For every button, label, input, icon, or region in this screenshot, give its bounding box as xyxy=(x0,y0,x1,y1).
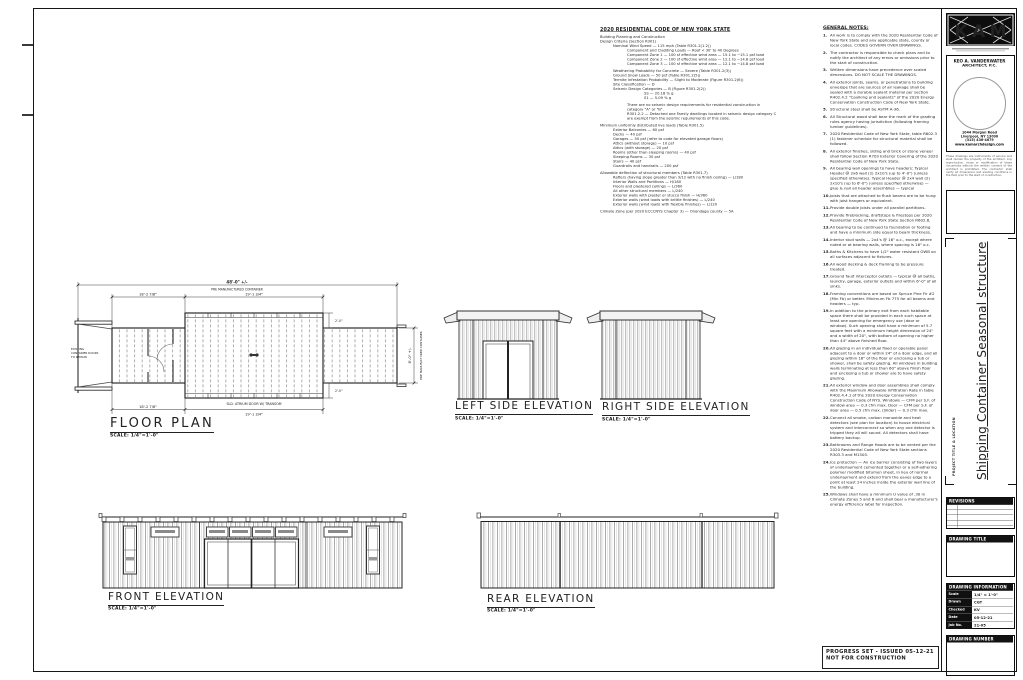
drawing-information-box: DRAWING INFORMATION Scale1/4" = 1'-0"Dra… xyxy=(946,583,1015,629)
note-text: All bearing wall openings to have header… xyxy=(830,166,938,191)
drawing-number-box: DRAWING NUMBER xyxy=(946,635,1015,676)
dim-seg-left-bottom: 18'-2 7/8" xyxy=(139,405,157,409)
note-text: The contractor is responsible to check p… xyxy=(830,50,938,65)
note-number: 14. xyxy=(823,237,830,247)
drawing-info-label: Drawn xyxy=(947,599,972,606)
atrium-door-label: SLD. ATRIUM DOOR W/ TRANSOM xyxy=(226,402,281,406)
corner-mark xyxy=(945,476,954,485)
note-number: 23. xyxy=(823,443,830,458)
general-note: 22.Connect all smoke, carbon monoxide an… xyxy=(823,415,938,440)
dim-height: 8'-0" +/- xyxy=(407,347,412,364)
note-text: All work is to comply with the 2020 Resi… xyxy=(830,33,938,48)
general-note: 8.All exterior finishes, siding and bric… xyxy=(823,149,938,164)
general-note: 4.All exterior joints, seams, or penetra… xyxy=(823,80,938,105)
note-text: All glazing in an individual fixed or op… xyxy=(830,346,938,381)
drawing-info-value: KV xyxy=(972,606,1013,613)
drawing-info-label: Scale xyxy=(947,591,972,598)
dim-bump-top: 2'-0" xyxy=(335,319,343,323)
general-notes-block: GENERAL NOTES: 1.All work is to comply w… xyxy=(823,25,938,680)
title-block: KAM KEO A. VANDERWATER ARCHITECT, P.C. 1… xyxy=(941,8,1018,672)
note-number: 6. xyxy=(823,114,830,129)
front-elevation-label: FRONT ELEVATION xyxy=(108,592,224,606)
dim-seg-left-top: 18'-2 7/8" xyxy=(139,293,157,297)
seal-signature-box xyxy=(946,190,1015,234)
floor-plan-label: FLOOR PLAN xyxy=(110,417,214,433)
drawing-info-label: Job No. xyxy=(947,622,972,629)
note-number: 17. xyxy=(823,274,830,289)
note-number: 2. xyxy=(823,50,830,65)
note-text: Ice protection — An ice barrier consisti… xyxy=(830,460,938,490)
note-text: 2020 Residential Code of New York State,… xyxy=(830,132,938,147)
logo-text: KAM xyxy=(955,22,1007,42)
general-note: 11.Provide double joists under all paral… xyxy=(823,206,938,211)
code-block-title: 2020 RESIDENTIAL CODE OF NEW YORK STATE xyxy=(600,27,813,33)
drawing-info-value: 05-12-21 xyxy=(972,614,1013,621)
note-text: All Structural wood shall bear the mark … xyxy=(830,114,938,129)
drawing-info-value: CGT xyxy=(972,599,1013,606)
general-note: 7.2020 Residential Code of New York Stat… xyxy=(823,132,938,147)
project-title: Shipping Container Seasonal structure xyxy=(975,241,989,480)
rear-elevation-drawing xyxy=(474,505,781,597)
note-number: 21. xyxy=(823,383,830,413)
general-note: 10.Joists that are attached to flush bea… xyxy=(823,193,938,203)
architect-stamp-box: KEO A. VANDERWATER ARCHITECT, P.C. 1044 … xyxy=(946,55,1015,152)
note-text: Joists that are attached to flush beams … xyxy=(830,193,938,203)
note-number: 8. xyxy=(823,149,830,164)
general-note: 9.All bearing wall openings to have head… xyxy=(823,166,938,191)
note-number: 25. xyxy=(823,492,830,507)
architect-seal-circle xyxy=(953,77,1006,130)
drawing-info-label: Checked xyxy=(947,606,972,613)
drawing-information-rows: Scale1/4" = 1'-0"DrawnCGTCheckedKVDate05… xyxy=(947,591,1013,629)
roof-cap xyxy=(457,311,559,320)
general-note: 18.Framing conventions are based on Spru… xyxy=(823,291,938,306)
general-note: 17.Ground fault interceptor outlets — ty… xyxy=(823,274,938,289)
dim-overall: 48'-0" +/- xyxy=(226,280,248,285)
floor-plan-drawing: 48'-0" +/- PRE MANUFACTURED CONTAINER 18… xyxy=(70,274,438,438)
rear-elevation-scale: SCALE: 1/4"=1'-0" xyxy=(487,608,577,613)
general-note: 25.Windows shall have a minimum U value … xyxy=(823,492,938,507)
stamp-line-2: NOT FOR CONSTRUCTION xyxy=(826,655,939,662)
dim-bump-bottom: 2'-0" xyxy=(335,389,343,393)
general-note: 1.All work is to comply with the 2020 Re… xyxy=(823,33,938,48)
revisions-divider xyxy=(957,505,958,528)
architect-website: www.kamarchdesign.com xyxy=(947,142,1012,146)
note-number: 12. xyxy=(823,213,830,223)
project-title-location-label: PROJECT TITLE & LOCATION xyxy=(952,417,956,476)
note-text: All exterior finishes, siding and brick … xyxy=(830,149,938,164)
note-number: 24. xyxy=(823,460,830,490)
note-number: 20. xyxy=(823,346,830,381)
note-number: 1. xyxy=(823,33,830,48)
corrugated-wall xyxy=(481,522,774,589)
progress-stamp: PROGRESS SET - ISSUED 05-12-21 NOT FOR C… xyxy=(822,646,939,669)
general-note: 12.Provide fireblocking, draftstops & fi… xyxy=(823,213,938,223)
note-text: All bearing to be continued to foundatio… xyxy=(830,225,938,235)
note-text: In addition to the primary exit from eac… xyxy=(830,309,938,344)
note-text: Provide fireblocking, draftstops & fires… xyxy=(830,213,938,223)
dim-seg-center-top: 19'-1 3/4" xyxy=(245,293,263,297)
code-lines: Building Planning and ConstructionDesign… xyxy=(600,35,813,214)
note-number: 4. xyxy=(823,80,830,105)
note-text: Ground fault interceptor outlets — typic… xyxy=(830,274,938,289)
general-note: 3.Written dimensions have precedence ove… xyxy=(823,68,938,78)
note-text: Bathrooms and Range Hoods are to be vent… xyxy=(830,443,938,458)
general-note: 5.Structural steel shall be ASTM A-36. xyxy=(823,107,938,112)
general-note: 14.Interior stud walls — 2x4's @ 16" o.c… xyxy=(823,237,938,247)
note-text: All wood decking & deck framing to be pr… xyxy=(830,262,938,272)
drawing-sheet: 2020 RESIDENTIAL CODE OF NEW YORK STATE … xyxy=(0,0,1023,680)
note-number: 22. xyxy=(823,415,830,440)
general-note: 2.The contractor is responsible to check… xyxy=(823,50,938,65)
left-elevation-scale: SCALE: 1/4"=1'-0" xyxy=(455,416,545,421)
note-text: All exterior window and door assemblies … xyxy=(830,383,938,413)
corner-mark xyxy=(1008,476,1017,485)
general-note: 19.In addition to the primary exit from … xyxy=(823,309,938,344)
note-number: 18. xyxy=(823,291,830,306)
note-number: 15. xyxy=(823,250,830,260)
drawing-title-header: DRAWING TITLE xyxy=(947,536,1013,543)
drawing-title-box: DRAWING TITLE xyxy=(946,535,1015,577)
drawing-info-row: CheckedKV xyxy=(947,606,1013,614)
drawing-info-row: Date05-12-21 xyxy=(947,614,1013,622)
general-note: 24.Ice protection — An ice barrier consi… xyxy=(823,460,938,490)
right-elevation-scale: SCALE: 1/4"=1'-0" xyxy=(602,417,692,422)
note-number: 19. xyxy=(823,309,830,344)
general-note: 13.All bearing to be continued to founda… xyxy=(823,225,938,235)
drawing-info-label: Date xyxy=(947,614,972,621)
drawing-information-header: DRAWING INFORMATION xyxy=(947,584,1013,591)
dim-height-sub: PRE MANUFACTURED CONTAINER xyxy=(419,331,423,379)
dim-overall-sub: PRE MANUFACTURED CONTAINER xyxy=(211,288,264,292)
left-side-elevation-drawing xyxy=(442,305,574,405)
dim-seg-center-bottom: 19'-1 3/4" xyxy=(245,413,263,417)
fold-mark xyxy=(22,44,33,46)
note-number: 10. xyxy=(823,193,830,203)
general-note: 23.Bathrooms and Range Hoods are to be v… xyxy=(823,443,938,458)
copyright-note: These drawings are instruments of servic… xyxy=(946,155,1015,188)
note-number: 11. xyxy=(823,206,830,211)
note-number: 13. xyxy=(823,225,830,235)
sliding-atrium-door xyxy=(205,539,299,588)
note-text: Provide double joists under all parallel… xyxy=(830,206,938,211)
right-side-elevation-drawing xyxy=(585,305,717,405)
note-number: 3. xyxy=(823,68,830,78)
general-note: 6.All Structural wood shall bear the mar… xyxy=(823,114,938,129)
note-number: 16. xyxy=(823,262,830,272)
drawing-number-header: DRAWING NUMBER xyxy=(947,636,1013,643)
note-number: 9. xyxy=(823,166,830,191)
note-number: 5. xyxy=(823,107,830,112)
left-elevation-label: LEFT SIDE ELEVATION xyxy=(455,401,593,415)
fold-mark xyxy=(22,114,33,116)
note-number: 7. xyxy=(823,132,830,147)
roof-clips xyxy=(101,517,404,522)
drawing-info-row: Scale1/4" = 1'-0" xyxy=(947,591,1013,599)
general-note: 21.All exterior window and door assembli… xyxy=(823,383,938,413)
general-note: 16.All wood decking & deck framing to be… xyxy=(823,262,938,272)
drawing-info-value: 1/4" = 1'-0" xyxy=(972,591,1013,598)
firm-logo: KAM xyxy=(946,13,1015,53)
note-text: Windows shall have a minimum U value of … xyxy=(830,492,938,507)
note-text: Connect all smoke, carbon monoxide and h… xyxy=(830,415,938,440)
front-elevation-scale: SCALE: 1/4"=1'-0" xyxy=(108,606,198,611)
note-text: Framing conventions are based on Spruce … xyxy=(830,291,938,306)
drawing-info-value: 21-05 xyxy=(972,622,1013,629)
note-text: Interior stud walls — 2x4's @ 16" o.c., … xyxy=(830,237,938,247)
front-elevation-drawing xyxy=(95,505,410,597)
code-compliance-block: 2020 RESIDENTIAL CODE OF NEW YORK STATE … xyxy=(600,27,813,255)
note-text: All exterior joints, seams, or penetrati… xyxy=(830,80,938,105)
general-note: 15.Baths & Kitchens to have 1/2" water r… xyxy=(823,250,938,260)
general-notes-title: GENERAL NOTES: xyxy=(823,25,938,31)
rear-elevation-label: REAR ELEVATION xyxy=(487,594,595,608)
corner-mark xyxy=(945,238,954,247)
corner-mark xyxy=(1008,238,1017,247)
note-text: Baths & Kitchens to have 1/2" water resi… xyxy=(830,250,938,260)
general-note: 20.All glazing in an individual fixed or… xyxy=(823,346,938,381)
floor-plan-scale: SCALE: 1/4"=1'-0" xyxy=(110,433,200,438)
revisions-table: REVISIONS xyxy=(946,497,1015,529)
right-elevation-label: RIGHT SIDE ELEVATION xyxy=(602,402,750,416)
note-text: Structural steel shall be ASTM A-36. xyxy=(830,107,938,112)
code-line: Climate Zone (per 2020 ECCCNYS Chapter 3… xyxy=(600,209,813,214)
note-text: Written dimensions have precedence over … xyxy=(830,68,938,78)
general-notes-list: 1.All work is to comply with the 2020 Re… xyxy=(823,33,938,507)
drawing-info-row: DrawnCGT xyxy=(947,598,1013,606)
roof-cap xyxy=(600,311,702,320)
architect-firm: ARCHITECT, P.C. xyxy=(947,64,1012,68)
existing-doors-note-3: TO REMAIN xyxy=(70,355,87,359)
drawing-info-row: Job No.21-05 xyxy=(947,621,1013,629)
